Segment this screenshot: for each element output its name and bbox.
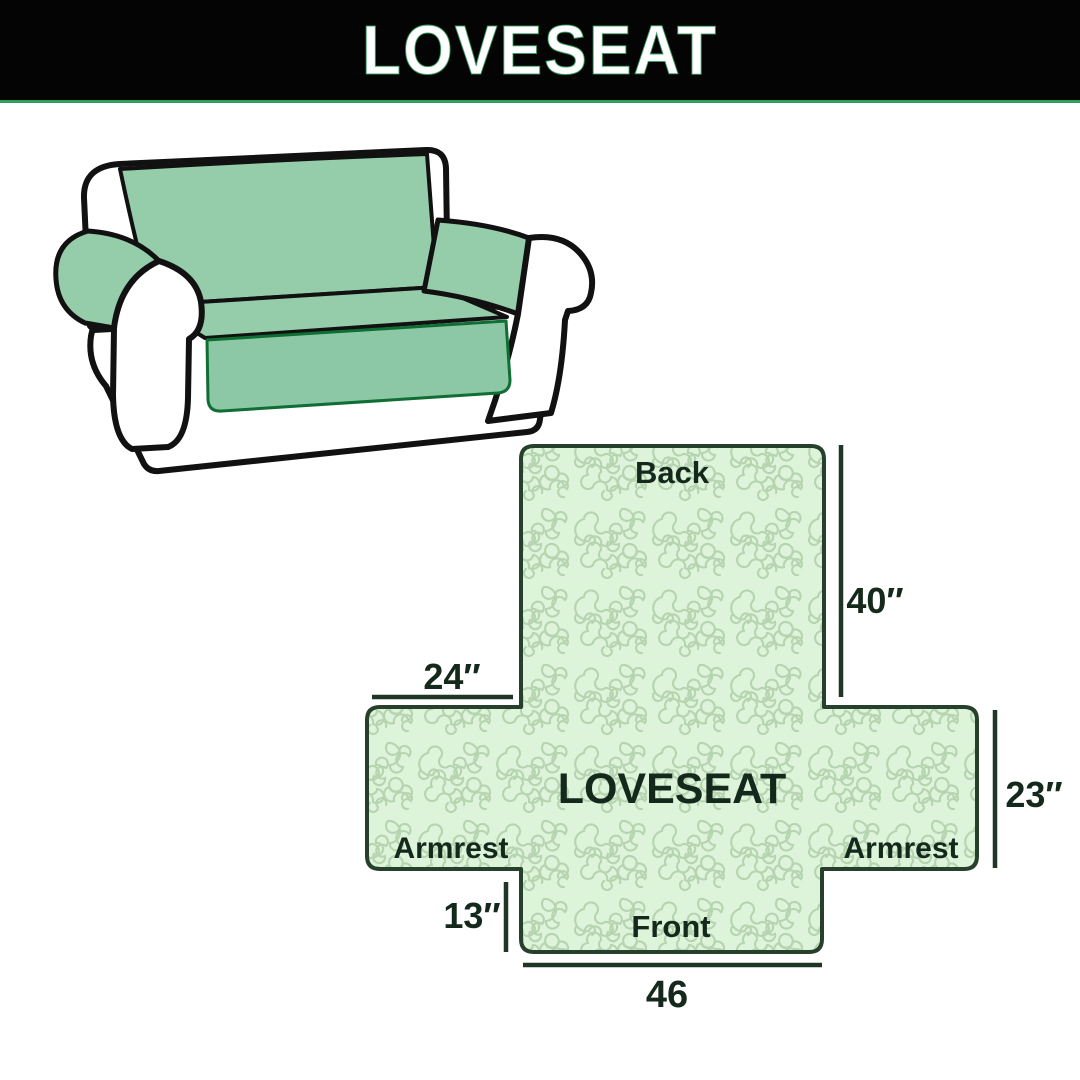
armrest-left-label: Armrest <box>393 832 508 865</box>
product-label: LOVESEAT <box>558 765 787 813</box>
dim-front-width: 46 <box>646 974 688 1016</box>
armrest-right-label: Armrest <box>843 832 958 865</box>
banner-title: LOVESEAT <box>362 10 718 90</box>
dim-back-height: 40″ <box>846 580 903 621</box>
sofa-left-arm <box>113 261 202 449</box>
top-banner: LOVESEAT <box>0 0 1080 103</box>
dim-front-drop: 13″ <box>443 895 500 936</box>
back-label: Back <box>635 455 710 490</box>
dim-armrest-width: 24″ <box>423 656 480 697</box>
front-label: Front <box>631 909 710 944</box>
dim-side-height: 23″ <box>1005 774 1062 815</box>
cover-diagram: Back LOVESEAT Armrest Armrest Front 40″ … <box>340 425 1080 1030</box>
